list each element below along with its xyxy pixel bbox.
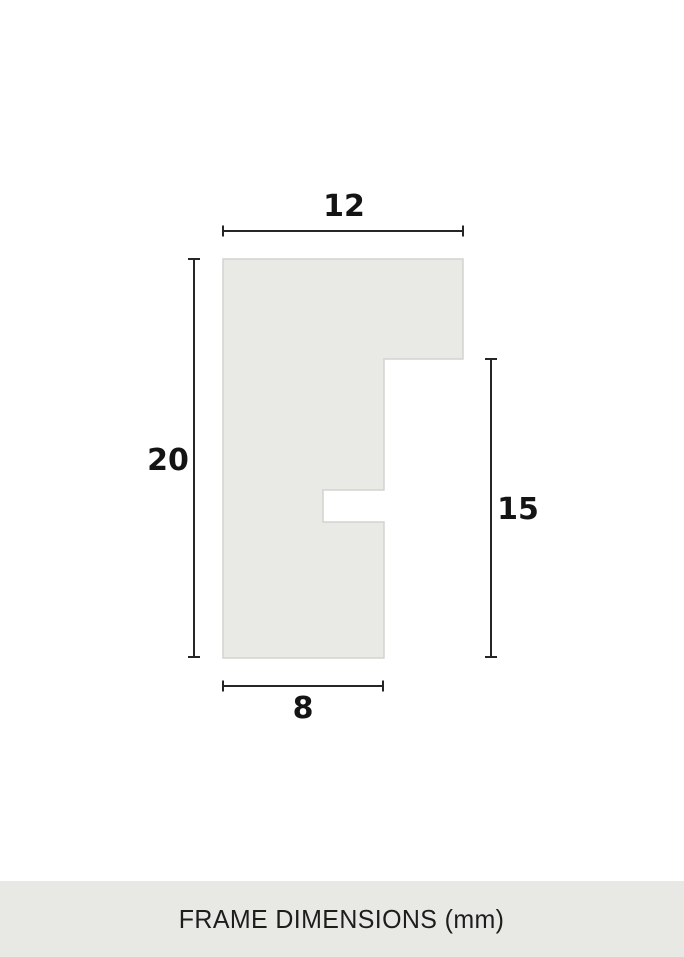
footer-title: FRAME DIMENSIONS (mm) <box>179 904 505 935</box>
dim-label-left-height: 20 <box>147 446 189 476</box>
dim-label-right-height: 15 <box>497 495 539 525</box>
frame-dimensions-page: 12 20 15 8 FRAME DIMENSIONS (mm) <box>0 0 684 957</box>
dimension-line-top-width <box>223 226 463 237</box>
dim-label-bottom-width: 8 <box>293 694 314 724</box>
frame-profile-shape <box>223 259 463 658</box>
dimension-line-right-height <box>485 359 497 657</box>
dim-label-top-width: 12 <box>323 192 365 222</box>
dimension-line-bottom-width <box>223 681 383 692</box>
footer-bar: FRAME DIMENSIONS (mm) <box>0 881 684 957</box>
dimension-line-left-height <box>188 259 200 657</box>
frame-profile-diagram <box>0 0 684 957</box>
